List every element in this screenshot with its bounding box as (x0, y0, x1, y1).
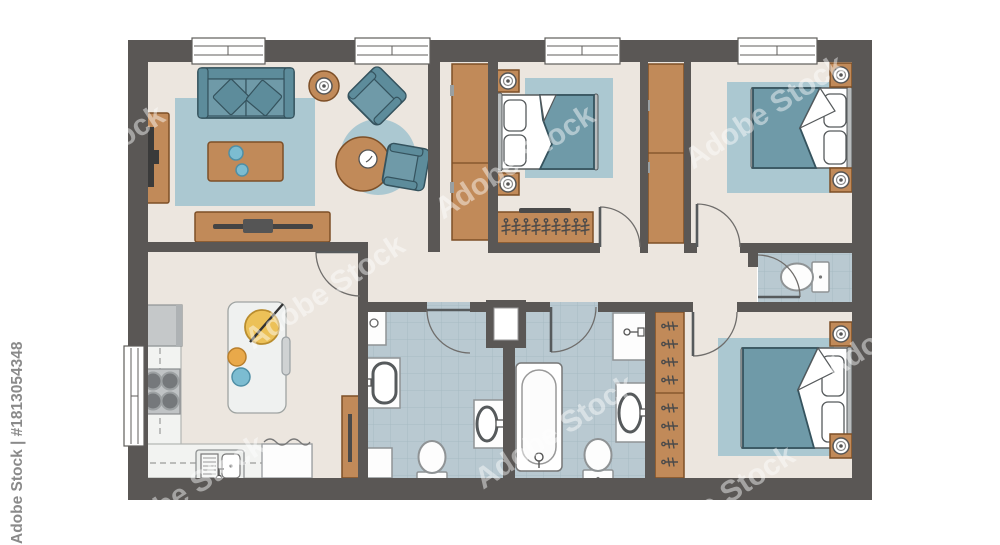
plate (359, 150, 377, 168)
wall (358, 302, 427, 312)
table-lamp (500, 73, 516, 89)
wardrobe-handle (450, 85, 454, 96)
sofa (198, 68, 294, 118)
wall (737, 302, 872, 312)
table-decor (229, 146, 243, 160)
headboard (847, 87, 852, 169)
floor-plan-image: Adobe Stock Adobe Stock Adobe Stock Adob… (0, 0, 1000, 545)
wall (128, 242, 365, 252)
duct-shaft (494, 308, 518, 340)
wall (748, 253, 758, 267)
wall (598, 302, 693, 312)
window (738, 38, 817, 64)
sink-vanity (474, 400, 505, 448)
plant-side-table (309, 71, 339, 101)
pillow (504, 100, 526, 131)
armchair (382, 143, 431, 192)
fridge-hinge (176, 305, 182, 346)
wall (645, 312, 655, 478)
wall (428, 62, 440, 252)
wall-cabinet (366, 308, 386, 345)
watermark-credit: Adobe Stock | #1813054348 (9, 341, 26, 544)
nightstand (497, 70, 519, 92)
table-lamp (833, 172, 849, 188)
window (124, 346, 144, 446)
window (192, 38, 265, 64)
dishwasher (262, 439, 312, 478)
media-sideboard (195, 212, 330, 242)
window (355, 38, 430, 64)
tall-cabinet (342, 396, 359, 478)
wall (488, 243, 600, 253)
wall (852, 40, 872, 500)
wall (740, 243, 872, 253)
bowl-orange (228, 348, 246, 366)
wall (640, 62, 648, 253)
wardrobe (646, 64, 684, 243)
table-lamp (833, 438, 849, 454)
wall (524, 302, 550, 312)
nightstand (830, 168, 852, 192)
nightstand (830, 434, 852, 458)
clothes-rack (497, 208, 593, 243)
counter (613, 313, 648, 360)
toilet (781, 262, 829, 292)
floor-plan-svg: Adobe Stock Adobe Stock Adobe Stock Adob… (0, 0, 1000, 545)
open-wardrobe (655, 312, 684, 478)
pillow (824, 131, 846, 164)
round-coffee-table (336, 137, 390, 191)
bowl-blue (232, 368, 250, 386)
bench (282, 337, 290, 375)
coffee-table (208, 142, 283, 181)
table-decor (236, 164, 248, 176)
window (545, 38, 620, 64)
